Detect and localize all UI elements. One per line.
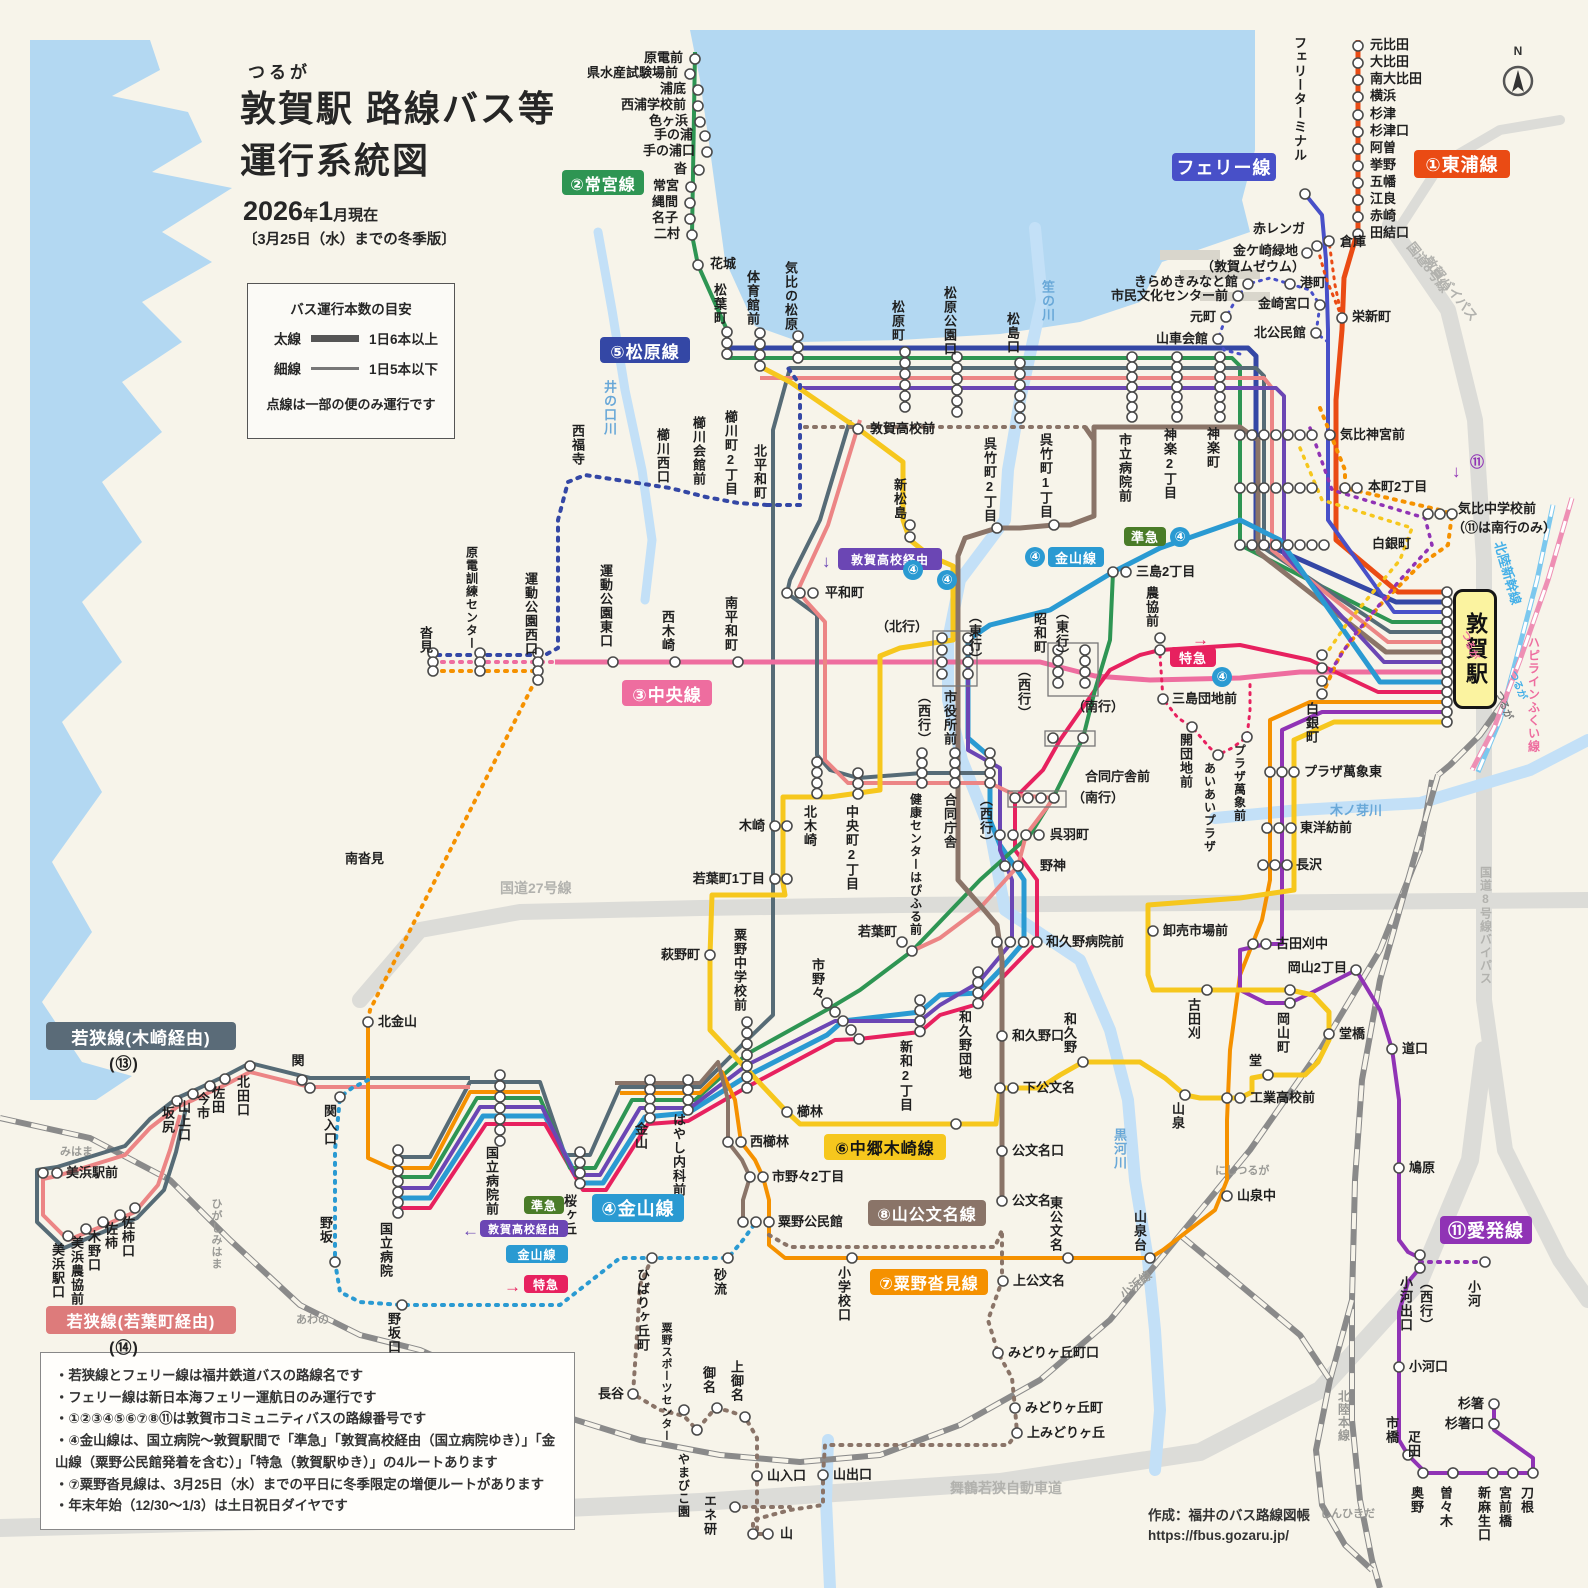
title-line1: 敦賀駅 路線バス等 <box>240 83 556 135</box>
route-badge: ②常宮線 <box>562 170 644 195</box>
station-dot <box>755 361 765 371</box>
station-dot <box>1442 707 1452 717</box>
station-dot <box>937 657 947 667</box>
station-dot <box>645 1094 655 1104</box>
station-label: 田結口 <box>1370 226 1409 240</box>
station-dot <box>335 1092 345 1102</box>
station-dot <box>495 1092 505 1102</box>
station-dot <box>1080 667 1090 677</box>
station-dot <box>770 874 780 884</box>
station-label: きらめきみなと館 <box>1134 275 1238 289</box>
station-dot <box>1423 509 1433 519</box>
station-dot <box>1213 334 1223 344</box>
station-label: 花城 <box>710 257 736 271</box>
station-dot <box>905 520 915 530</box>
station-dot <box>1271 430 1281 440</box>
station-dot <box>693 85 703 95</box>
station-dot <box>645 1104 655 1114</box>
station-dot <box>1235 1093 1245 1103</box>
station-label: 体育館前 <box>746 270 760 326</box>
station-dot <box>915 1027 925 1037</box>
station-dot <box>736 1137 746 1147</box>
station-dot <box>1108 567 1118 577</box>
station-dot <box>1172 362 1182 372</box>
station-dot <box>985 778 995 788</box>
station-dot <box>1049 520 1059 530</box>
station-dot <box>1387 1044 1397 1054</box>
station-dot <box>937 633 947 643</box>
station-label: 杉箸 <box>1458 1397 1484 1411</box>
station-label: 横浜 <box>1370 89 1396 103</box>
station-label: 金崎宮口 <box>1258 297 1310 311</box>
station-dot <box>1010 793 1020 803</box>
station-dot <box>1078 733 1088 743</box>
station-dot <box>52 1168 62 1178</box>
station-label: 北平和町 <box>753 444 767 500</box>
station-label: 木野口 <box>87 1230 101 1272</box>
route-badge: ④金山線 <box>592 1194 684 1222</box>
station-dot <box>1242 732 1252 742</box>
station-dot <box>742 1028 752 1038</box>
station-label: （西行） <box>917 690 931 746</box>
station-dot <box>695 117 705 127</box>
route-number-bubble: ④ <box>903 560 923 580</box>
station-dot <box>1248 939 1258 949</box>
credit-url[interactable]: https://fbus.gozaru.jp/ <box>1148 1526 1310 1546</box>
station-dot <box>1187 722 1197 732</box>
station-label: 大比田 <box>1370 55 1409 69</box>
station-dot <box>1311 328 1321 338</box>
station-dot <box>1180 1090 1190 1100</box>
station-dot <box>1312 241 1322 251</box>
station-dot <box>1048 733 1058 743</box>
station-label: 手の浦口 <box>643 144 695 158</box>
station-dot <box>985 748 995 758</box>
station-dot <box>428 666 438 676</box>
station-label: 白銀町 <box>1305 702 1319 744</box>
station-dot <box>997 1031 1007 1041</box>
station-dot <box>1442 617 1452 627</box>
route-badge: ③中央線 <box>622 680 712 706</box>
station-dot <box>1145 1253 1155 1263</box>
route-badge: (⑬) <box>96 1052 152 1072</box>
station-dot <box>1127 352 1137 362</box>
station-dot <box>700 131 710 141</box>
station-dot <box>782 821 792 831</box>
station-label: 三島2丁目 <box>1136 565 1195 579</box>
station-label: 井の口川 <box>603 380 617 436</box>
station-label: エネ研 <box>703 1494 717 1536</box>
station-label: 敦賀高校前 <box>870 422 935 436</box>
station-dot <box>1008 830 1018 840</box>
station-label: 山車会館 <box>1156 332 1208 346</box>
station-dot <box>742 1017 752 1027</box>
station-dot <box>952 363 962 373</box>
station-label: 阿曽 <box>1370 141 1396 155</box>
station-label: ⑪ <box>1470 455 1484 470</box>
legend-thick-row: 太線 1日6本以上 <box>274 328 454 348</box>
station-label: プラザ萬象東 <box>1304 765 1382 779</box>
station-dot <box>1172 402 1182 412</box>
station-dot <box>1021 830 1031 840</box>
station-dot <box>683 1085 693 1095</box>
station-dot <box>1127 402 1137 412</box>
station-label: 名子 <box>652 211 678 225</box>
map-date-note: 〔3月25日（水）までの冬季版〕 <box>243 228 456 249</box>
station-label: 道口 <box>1402 1042 1428 1056</box>
station-dot <box>1319 540 1329 550</box>
station-dot <box>393 1208 403 1218</box>
station-dot <box>993 1348 1003 1358</box>
station-dot <box>220 1074 230 1084</box>
station-dot <box>692 1425 702 1435</box>
station-dot <box>1032 937 1042 947</box>
station-label: あいあいプラザ <box>1203 762 1215 853</box>
station-label: 農協前 <box>1145 586 1159 628</box>
station-dot <box>1053 667 1063 677</box>
station-dot <box>733 657 743 667</box>
station-label: 美浜農協前 <box>70 1236 84 1306</box>
route-badge: ⑧山公文名線 <box>868 1200 986 1226</box>
route-badge: 準急 <box>524 1196 564 1214</box>
station-label: 美浜駅口 <box>51 1243 65 1299</box>
station-dot <box>950 768 960 778</box>
station-dot <box>853 424 863 434</box>
station-label: 坂尻 <box>161 1106 175 1134</box>
route-badge: ⑪愛発線 <box>1440 1216 1532 1244</box>
station-dot <box>693 260 703 270</box>
station-dot <box>628 1389 638 1399</box>
station-dot <box>575 1147 585 1157</box>
station-dot <box>915 995 925 1005</box>
station-dot <box>1222 1093 1232 1103</box>
station-dot <box>853 779 863 789</box>
station-dot <box>1215 372 1225 382</box>
station-dot <box>854 1034 864 1044</box>
station-dot <box>1019 937 1029 947</box>
station-dot <box>393 1156 403 1166</box>
note-line: ・④金山線は、国立病院～敦賀駅間で「準急」「敦賀高校経由（国立病院ゆき）」「金山… <box>55 1430 560 1473</box>
station-label: みはま <box>60 1147 93 1158</box>
station-dot <box>475 666 485 676</box>
note-line: ・若狭線とフェリー線は福井鉄道バスの路線名です <box>55 1365 560 1387</box>
station-label: 杉津 <box>1370 107 1396 121</box>
station-dot <box>1036 793 1046 803</box>
station-dot <box>751 1217 761 1227</box>
station-label: 山泉台 <box>1133 1210 1147 1252</box>
station-dot <box>1049 793 1059 803</box>
station-label: 佐田 <box>211 1086 225 1114</box>
station-label: 国立病院前 <box>485 1146 499 1216</box>
station-label: 和久野口 <box>1012 1029 1064 1043</box>
station-label: 刀根 <box>1520 1486 1534 1514</box>
station-label: 呉竹町1丁目 <box>1039 433 1053 519</box>
station-dot <box>1127 392 1137 402</box>
station-dot <box>647 1253 657 1263</box>
credit-author: 作成：福井のバス路線図帳 <box>1148 1506 1310 1526</box>
station-label: 合同庁舎前 <box>1085 770 1150 784</box>
station-dot <box>742 1039 752 1049</box>
station-dot <box>900 380 910 390</box>
station-dot <box>305 1083 315 1093</box>
station-dot <box>1442 687 1452 697</box>
station-dot <box>685 69 695 79</box>
station-dot <box>900 402 910 412</box>
station-dot <box>1295 483 1305 493</box>
route-badge: 敦賀高校経由 <box>480 1220 568 1237</box>
station-label: 関入口 <box>323 1104 337 1146</box>
station-dot <box>1317 689 1327 699</box>
station-label: 上公文名 <box>1013 1274 1065 1288</box>
station-dot <box>917 768 927 778</box>
station-dot <box>782 874 792 884</box>
station-dot <box>393 1166 403 1176</box>
station-label: 松原町 <box>891 300 905 342</box>
station-dot <box>847 1253 857 1263</box>
credit: 作成：福井のバス路線図帳 https://fbus.gozaru.jp/ <box>1148 1506 1310 1547</box>
station-dot <box>992 937 1002 947</box>
station-label: 神楽2丁目 <box>1163 428 1177 500</box>
station-label: 浦底 <box>660 82 686 96</box>
station-label: 市民文化センター前 <box>1111 289 1228 303</box>
station-dot <box>1015 413 1025 423</box>
station-label: 公文名 <box>1012 1194 1051 1208</box>
station-label: 国立病院 <box>379 1222 393 1278</box>
station-dot <box>1353 195 1363 205</box>
station-dot <box>782 588 792 598</box>
station-dot <box>1283 540 1293 550</box>
station-label: 松葉町 <box>713 283 727 325</box>
station-dot <box>985 758 995 768</box>
station-label: 佐柿口 <box>121 1216 135 1258</box>
station-label: 佐柿 <box>104 1222 118 1250</box>
station-dot <box>1127 362 1137 372</box>
station-dot <box>1447 509 1457 519</box>
station-label: 沓見 <box>419 626 433 654</box>
station-dot <box>937 645 947 655</box>
station-label: 曽々木 <box>1439 1486 1453 1528</box>
station-dot <box>712 1403 722 1413</box>
station-dot <box>1442 657 1452 667</box>
station-dot <box>1015 380 1025 390</box>
route-badge: 金山線 <box>506 1245 568 1263</box>
station-dot <box>900 391 910 401</box>
station-dot <box>1277 767 1287 777</box>
station-dot <box>905 532 915 542</box>
station-dot <box>793 331 803 341</box>
station-dot <box>694 165 704 175</box>
station-dot <box>917 758 927 768</box>
direction-arrow: → <box>504 1277 521 1297</box>
station-dot <box>1442 647 1452 657</box>
station-dot <box>1008 1083 1018 1093</box>
station-dot <box>1235 540 1245 550</box>
station-label: 運動公園東口 <box>599 564 613 648</box>
station-dot <box>951 1119 961 1129</box>
station-dot <box>730 1502 740 1512</box>
station-dot <box>812 757 822 767</box>
station-dot <box>1353 41 1363 51</box>
note-line: ・①②③④⑤⑥⑦⑧⑪は敦賀市コミュニティバスの路線番号です <box>55 1408 560 1430</box>
station-dot <box>1283 430 1293 440</box>
direction-arrow: ↓ <box>1452 462 1461 482</box>
station-dot <box>950 748 960 758</box>
station-dot <box>1442 597 1452 607</box>
thin-line-sample <box>311 367 359 370</box>
station-label: 赤レンガ <box>1253 222 1305 236</box>
station-dot <box>1158 694 1168 704</box>
station-dot <box>1080 678 1090 688</box>
station-dot <box>683 1075 693 1085</box>
station-label: 港町 <box>1300 276 1326 290</box>
station-dot <box>1353 110 1363 120</box>
station-dot <box>985 768 995 778</box>
legend-box: バス運行本数の目安 太線 1日6本以上 細線 1日5本以下 点線は一部の便のみ運… <box>247 283 455 439</box>
station-label: 松島口 <box>1006 312 1020 354</box>
station-label: 市野々 <box>811 958 825 1000</box>
station-label: 小学校口 <box>837 1266 851 1322</box>
station-label: 神楽町 <box>1206 427 1220 469</box>
station-dot <box>995 830 1005 840</box>
legend-thin-row: 細線 1日5本以下 <box>274 358 454 378</box>
station-label: 粟野スポーツセンター <box>660 1322 671 1442</box>
station-label: 開団地前 <box>1179 733 1193 789</box>
station-label: 二村 <box>654 227 680 241</box>
station-dot <box>1489 1419 1499 1429</box>
station-dot <box>1127 372 1137 382</box>
station-label: 縄間 <box>652 195 678 209</box>
station-label: 笙の川 <box>1041 280 1055 322</box>
station-dot <box>1324 236 1334 246</box>
station-label: 元比田 <box>1370 38 1409 52</box>
station-label: 南沓見 <box>345 852 384 866</box>
station-label: 南大比田 <box>1370 72 1422 86</box>
station-label: 手の浦 <box>654 128 693 142</box>
station-dot <box>1221 312 1231 322</box>
station-label: 赤崎 <box>1370 209 1396 223</box>
station-dot <box>1271 483 1281 493</box>
route-badge: 若狭線(木崎経由) <box>46 1022 236 1050</box>
bus-route-line <box>555 662 1443 680</box>
station-dot <box>723 1137 733 1147</box>
station-label: 舞鶴若狭自動車道 <box>950 1481 1062 1496</box>
station-dot <box>770 821 780 831</box>
station-dot <box>1023 793 1033 803</box>
station-dot <box>973 988 983 998</box>
station-label: N <box>1514 45 1523 57</box>
station-dot <box>1259 430 1269 440</box>
station-dot <box>1317 663 1327 673</box>
station-dot <box>687 230 697 240</box>
station-dot <box>1285 998 1295 1008</box>
station-dot <box>952 407 962 417</box>
station-dot <box>752 1471 762 1481</box>
station-dot <box>1063 1253 1073 1263</box>
station-label: 和久野病院前 <box>1046 935 1124 949</box>
station-label: 西福寺 <box>571 424 585 466</box>
station-dot <box>1307 540 1317 550</box>
station-dot <box>1005 937 1015 947</box>
route-badge: 特急 <box>1170 647 1216 667</box>
station-label: 関 <box>291 1054 304 1068</box>
station-dot <box>683 1095 693 1105</box>
station-label: 櫛川会館前 <box>692 416 706 486</box>
station-dot <box>1222 1191 1232 1201</box>
station-dot <box>1247 483 1257 493</box>
station-label: 倉庫 <box>1340 235 1366 249</box>
route-number-bubble: ④ <box>937 570 957 590</box>
station-dot <box>533 675 543 685</box>
station-label: 三島団地前 <box>1172 692 1237 706</box>
station-dot <box>742 1050 752 1060</box>
station-dot <box>997 1196 1007 1206</box>
station-label: （北行） <box>876 620 928 634</box>
station-dot <box>1172 392 1182 402</box>
station-dot <box>1448 1468 1458 1478</box>
station-label: みどりヶ丘町口 <box>1008 1346 1099 1360</box>
station-dot <box>1015 358 1025 368</box>
station-label: 本町2丁目 <box>1368 480 1427 494</box>
station-dot <box>608 657 618 667</box>
thick-line-sample <box>311 335 359 342</box>
station-dot <box>1442 587 1452 597</box>
station-dot <box>812 768 822 778</box>
station-dot <box>950 758 960 768</box>
station-label: 沓 <box>674 162 687 176</box>
map-title: つるが 敦賀駅 路線バス等 運行系統図 <box>240 58 556 187</box>
station-label: 木崎 <box>739 819 765 833</box>
station-label: 櫛川町2丁目 <box>724 410 738 496</box>
station-dot <box>1172 352 1182 362</box>
station-dot <box>755 350 765 360</box>
station-dot <box>1307 483 1317 493</box>
station-label: （西行） <box>1017 664 1031 720</box>
sea-area <box>30 40 232 1100</box>
station-label: 気比中学校前 <box>1458 502 1536 516</box>
legend-dotted-note: 点線は一部の便のみ運行です <box>248 394 454 413</box>
station-label: 山出口 <box>833 1468 872 1482</box>
station-label: （⑪は南行のみ） <box>1452 521 1556 535</box>
station-dot <box>1442 717 1452 727</box>
station-label: 櫛林 <box>797 1105 823 1119</box>
station-dot <box>1263 1070 1273 1080</box>
station-dot <box>1394 1163 1404 1173</box>
station-dot <box>755 339 765 349</box>
station-dot <box>795 588 805 598</box>
station-dot <box>1235 483 1245 493</box>
station-dot <box>1508 1468 1518 1478</box>
station-dot <box>915 1006 925 1016</box>
station-label: 原電訓練センター <box>465 546 477 650</box>
station-label: 鳩原 <box>1409 1161 1435 1175</box>
station-label: 若葉町1丁目 <box>693 872 765 886</box>
station-label: 小河口 <box>1409 1360 1448 1374</box>
station-dot <box>1013 861 1023 871</box>
station-dot <box>1442 607 1452 617</box>
station-label: 運動公園西口 <box>524 572 538 656</box>
station-dot <box>764 1217 774 1227</box>
station-dot <box>1289 767 1299 777</box>
route-number-bubble: ④ <box>1025 547 1045 567</box>
station-label: 気比神宮前 <box>1340 428 1405 442</box>
station-dot <box>1262 823 1272 833</box>
route-badge: 特急 <box>524 1275 568 1293</box>
station-dot <box>393 1198 403 1208</box>
route-badge: 金山線 <box>1048 547 1104 567</box>
station-dot <box>1172 382 1182 392</box>
station-dot <box>742 1061 752 1071</box>
station-label: 古田刈中 <box>1276 937 1328 951</box>
